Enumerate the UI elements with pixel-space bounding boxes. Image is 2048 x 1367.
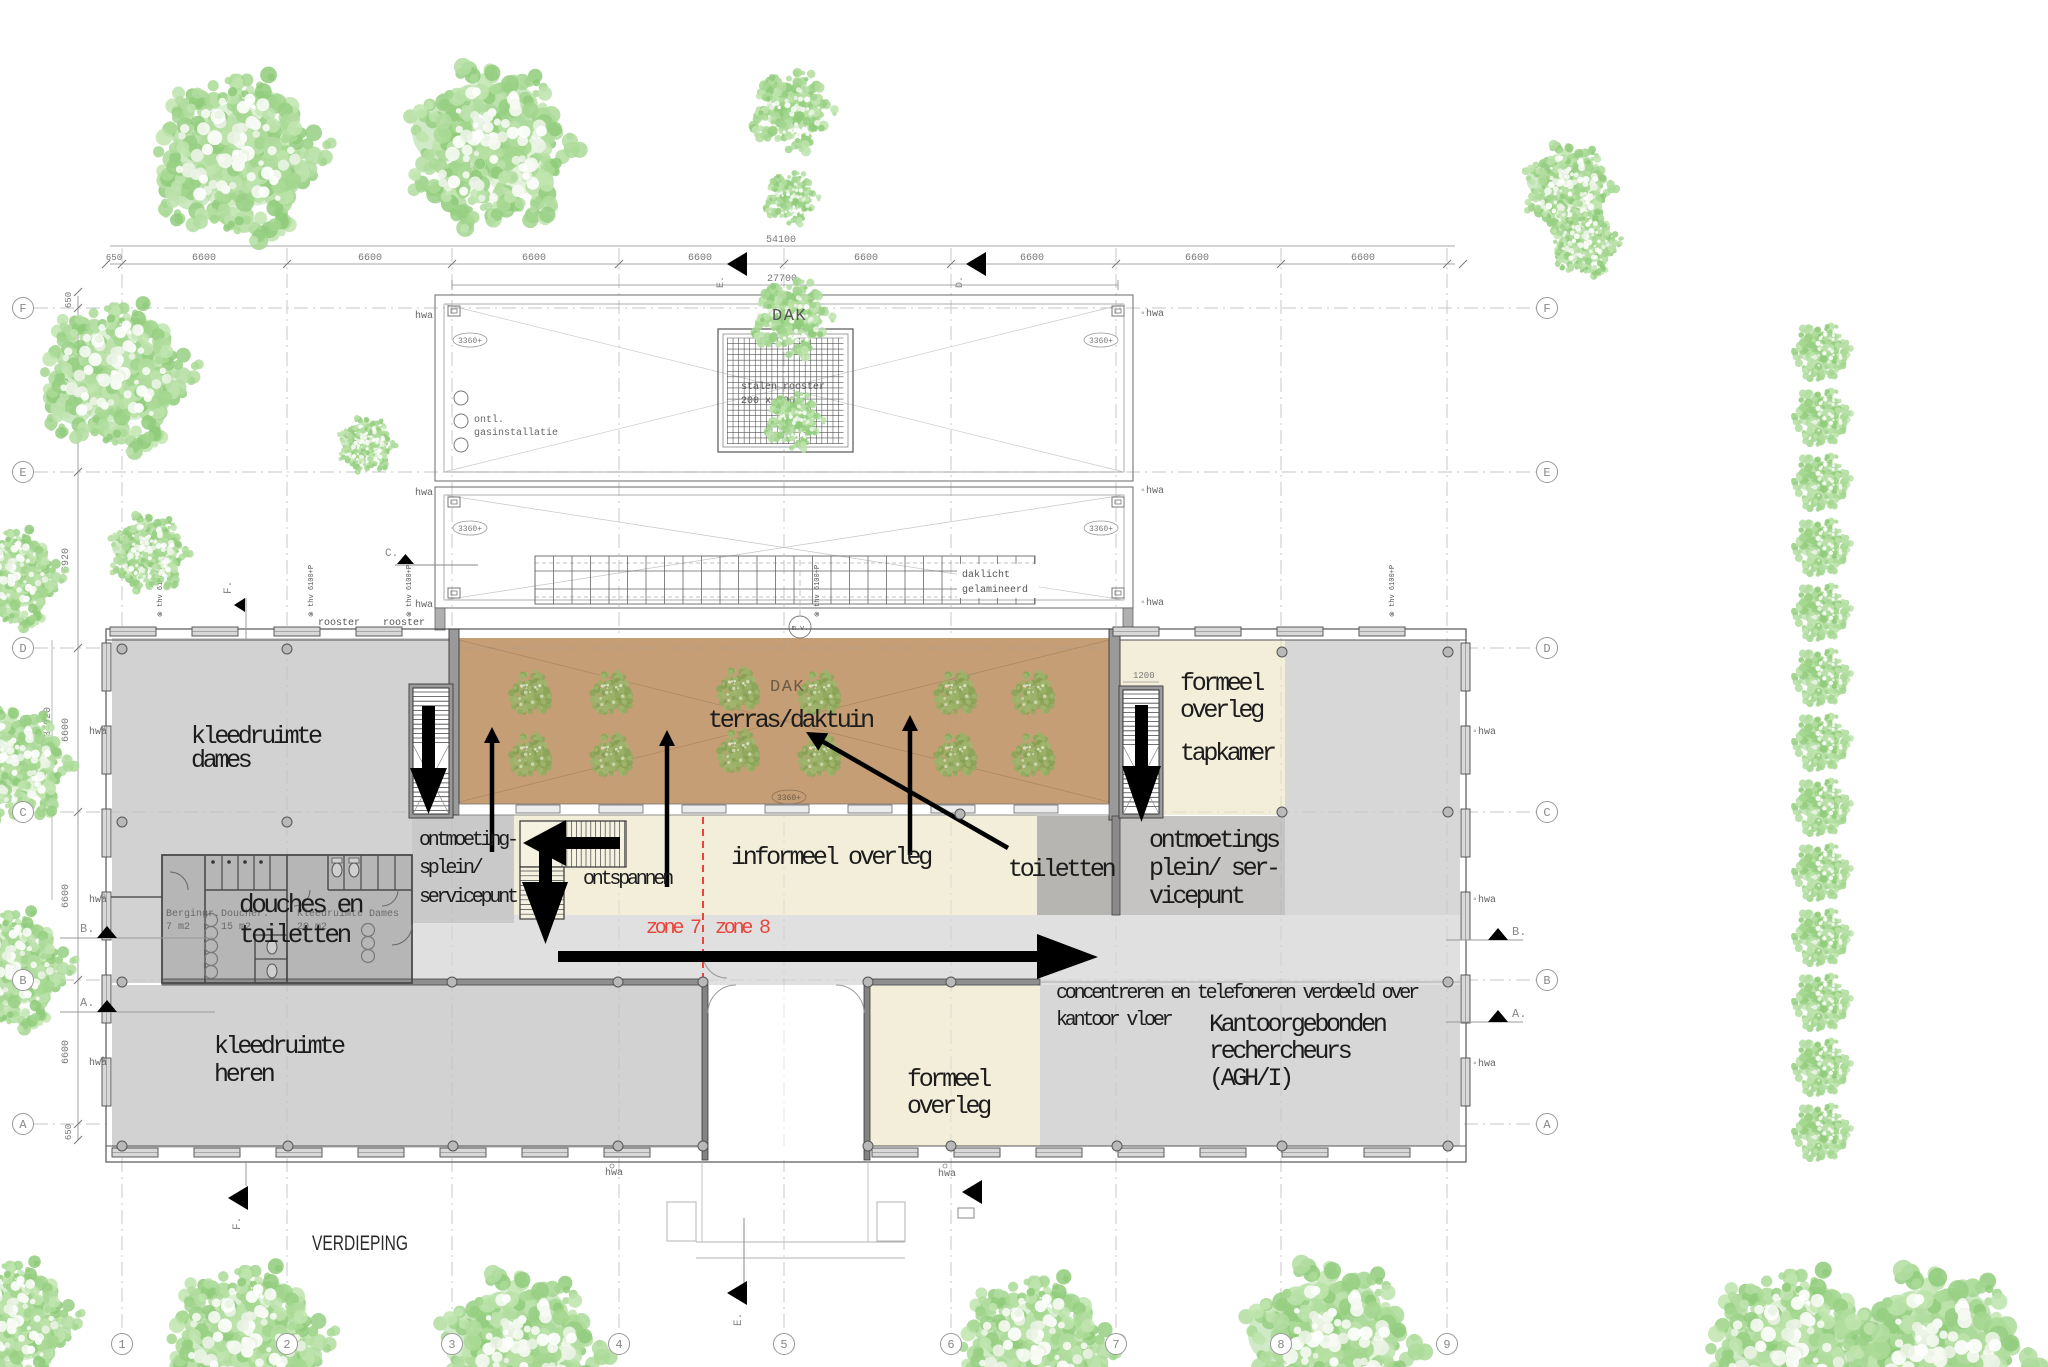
svg-text:8: 8 [1277, 1338, 1284, 1352]
svg-text:B: B [19, 974, 26, 988]
svg-text:6600: 6600 [522, 253, 546, 264]
svg-text:C: C [19, 806, 26, 820]
svg-text:zone 8: zone 8 [715, 917, 770, 940]
svg-text:ontspannen: ontspannen [583, 868, 673, 891]
svg-text:kantoor vloer: kantoor vloer [1056, 1009, 1173, 1032]
svg-text:Kantoorgebonden: Kantoorgebonden [1209, 1010, 1386, 1039]
svg-text:vicepunt: vicepunt [1149, 882, 1244, 911]
svg-text:E: E [1543, 466, 1550, 480]
svg-text:overleg: overleg [907, 1092, 990, 1121]
svg-text:ontmoetings: ontmoetings [1149, 826, 1279, 855]
svg-text:E: E [19, 466, 26, 480]
svg-text:daklicht: daklicht [962, 569, 1010, 581]
svg-text:A.: A. [1512, 1007, 1526, 1021]
svg-text:2: 2 [283, 1338, 290, 1352]
svg-text:7: 7 [1112, 1338, 1119, 1352]
svg-text:toiletten: toiletten [1008, 855, 1115, 884]
svg-text:plein/ ser-: plein/ ser- [1149, 854, 1278, 883]
svg-text:heren: heren [214, 1060, 274, 1089]
svg-text:◦hwa: ◦hwa [1472, 894, 1496, 906]
svg-text:D: D [1543, 642, 1550, 656]
svg-text:1: 1 [118, 1338, 125, 1352]
svg-text:650: 650 [106, 253, 122, 263]
svg-text:Bergingr.: Bergingr. [166, 908, 220, 920]
svg-text:B.: B. [1512, 925, 1526, 939]
svg-text:F: F [19, 302, 26, 316]
svg-text:splein/: splein/ [419, 857, 483, 880]
svg-text:hwa: hwa [89, 1057, 107, 1069]
svg-text:3360+: 3360+ [458, 337, 482, 346]
svg-text:hwa: hwa [89, 894, 107, 906]
svg-text:toiletten: toiletten [239, 920, 351, 950]
svg-text:informeel overleg: informeel overleg [731, 843, 931, 872]
svg-text:E.: E. [733, 1313, 745, 1326]
svg-text:kleedruimte: kleedruimte [214, 1032, 345, 1061]
svg-text:7 m2: 7 m2 [166, 922, 190, 933]
svg-text:650: 650 [64, 1124, 74, 1140]
svg-text:ontl.: ontl. [474, 414, 504, 426]
svg-text:douches en: douches en [239, 890, 363, 920]
svg-text:A: A [1543, 1118, 1551, 1132]
svg-text:⊗ thv 6100+P: ⊗ thv 6100+P [1389, 565, 1397, 617]
svg-text:B.: B. [80, 922, 94, 936]
svg-text:5: 5 [780, 1338, 787, 1352]
svg-text:1200: 1200 [1133, 671, 1155, 681]
svg-text:3360+: 3360+ [1089, 525, 1113, 534]
svg-text:formeel: formeel [1180, 669, 1264, 698]
svg-text:◦hwa: ◦hwa [1140, 485, 1164, 497]
svg-text:dames: dames [191, 746, 251, 775]
svg-text:stalen rooster: stalen rooster [741, 381, 825, 393]
svg-text:C: C [1543, 806, 1550, 820]
svg-text:overleg: overleg [1180, 696, 1263, 725]
svg-text:◦hwa: ◦hwa [1472, 1058, 1496, 1070]
svg-text:formeel: formeel [907, 1065, 991, 1094]
svg-text:6600: 6600 [61, 1040, 72, 1064]
svg-text:hwa: hwa [89, 726, 107, 738]
svg-text:tapkamer: tapkamer [1180, 739, 1275, 768]
svg-text:DAK: DAK [772, 307, 807, 326]
svg-text:6600: 6600 [192, 253, 216, 264]
svg-text:DAK: DAK [770, 678, 805, 697]
svg-text:zone 7: zone 7 [646, 917, 701, 940]
svg-text:servicepunt: servicepunt [419, 886, 517, 909]
svg-text:F.: F. [232, 1217, 244, 1230]
svg-text:(AGH/I): (AGH/I) [1209, 1064, 1291, 1093]
svg-text:◦hwa: ◦hwa [1140, 597, 1164, 609]
svg-text:C.: C. [385, 548, 398, 560]
svg-text:D.: D. [955, 276, 966, 288]
svg-text:E.: E. [716, 276, 727, 288]
svg-text:A.: A. [80, 996, 94, 1010]
svg-text:6600: 6600 [61, 884, 72, 908]
svg-text:hwa: hwa [415, 487, 433, 499]
svg-text:hwa: hwa [415, 310, 433, 322]
svg-text:gelamineerd: gelamineerd [962, 584, 1028, 596]
svg-text:hwa: hwa [605, 1167, 623, 1179]
svg-text:◦hwa: ◦hwa [1140, 308, 1164, 320]
svg-text:6600: 6600 [854, 253, 878, 264]
svg-text:B: B [1543, 974, 1550, 988]
svg-text:gasinstallatie: gasinstallatie [474, 427, 558, 439]
svg-text:rooster: rooster [318, 618, 360, 629]
svg-text:6600: 6600 [1351, 253, 1375, 264]
svg-text:F.: F. [223, 581, 235, 594]
svg-text:6600: 6600 [688, 253, 712, 264]
svg-text:3360+: 3360+ [777, 794, 801, 803]
svg-text:6600: 6600 [1020, 253, 1044, 264]
svg-text:ontmoeting-: ontmoeting- [419, 829, 516, 852]
svg-text:650: 650 [64, 292, 74, 308]
svg-text:3360+: 3360+ [1089, 337, 1113, 346]
svg-text:D: D [19, 642, 26, 656]
svg-text:terras/daktuin: terras/daktuin [708, 706, 873, 735]
svg-text:3: 3 [448, 1338, 455, 1352]
svg-text:6600: 6600 [61, 718, 72, 742]
svg-text:6: 6 [947, 1338, 954, 1352]
svg-text:⊗ thv 6100+P: ⊗ thv 6100+P [308, 565, 316, 617]
svg-text:◦hwa: ◦hwa [1472, 726, 1496, 738]
svg-text:⊗ thv 6100+P: ⊗ thv 6100+P [814, 565, 822, 617]
svg-text:3360+: 3360+ [458, 525, 482, 534]
svg-text:hwa: hwa [415, 599, 433, 611]
svg-text:6600: 6600 [1185, 253, 1209, 264]
svg-text:rechercheurs: rechercheurs [1209, 1037, 1351, 1066]
svg-text:54100: 54100 [766, 235, 796, 246]
svg-text:6600: 6600 [358, 253, 382, 264]
svg-text:F: F [1543, 302, 1550, 316]
svg-text:4: 4 [615, 1338, 622, 1352]
svg-text:A: A [19, 1118, 27, 1132]
svg-text:⊗ thv 6100+P: ⊗ thv 6100+P [406, 565, 414, 617]
svg-text:VERDIEPING: VERDIEPING [312, 1232, 408, 1255]
svg-text:concentreren en telefoneren ve: concentreren en telefoneren verdeeld ove… [1056, 982, 1419, 1005]
svg-text:rooster: rooster [383, 618, 425, 629]
svg-text:hwa: hwa [938, 1168, 956, 1180]
svg-text:9: 9 [1443, 1338, 1450, 1352]
